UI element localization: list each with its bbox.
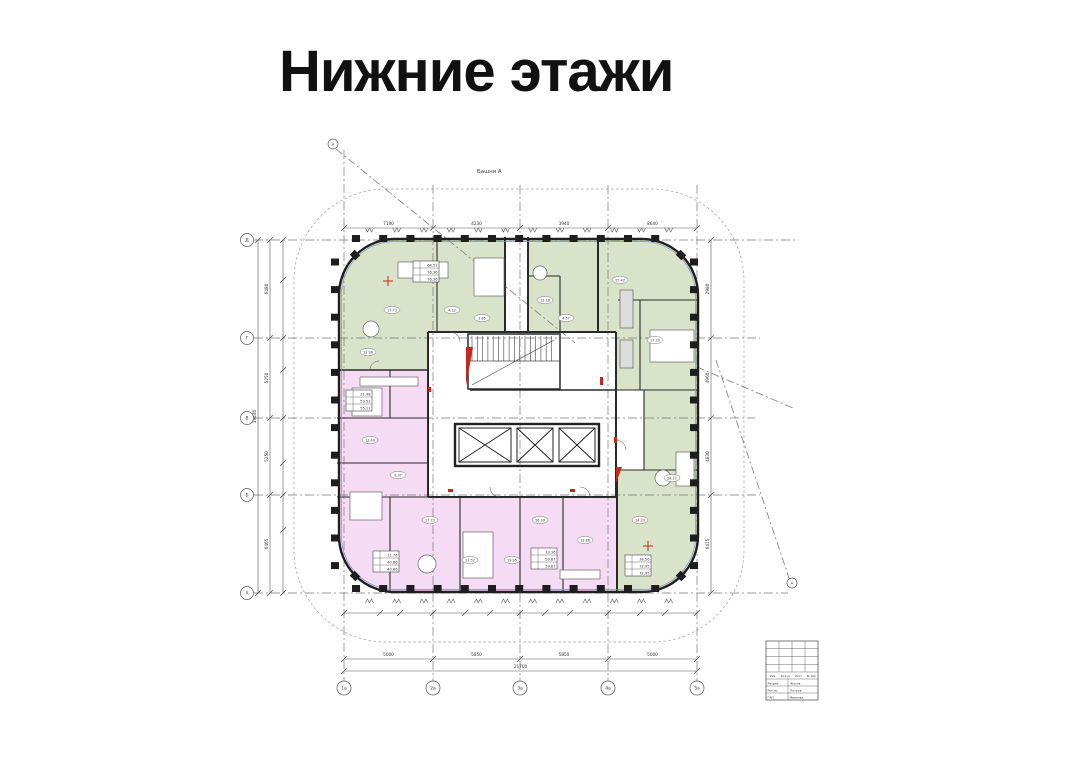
window-mark <box>393 599 401 603</box>
window-mark <box>638 228 646 232</box>
stat-value: 40.66 <box>387 568 398 572</box>
axis-marker-label: 4а <box>605 686 611 692</box>
room-area-label: 12.96 <box>363 350 373 354</box>
window-mark <box>447 599 455 603</box>
window-mark <box>366 228 374 232</box>
dining-table <box>533 266 547 280</box>
room-area-label: 4.12 <box>448 308 456 312</box>
room-area-label: 17.73 <box>425 518 435 522</box>
stat-value: 59.87 <box>545 558 555 562</box>
stat-value: 76.36 <box>427 278 438 282</box>
room-area-label: 12.40 <box>365 438 375 442</box>
window-mark <box>665 228 673 232</box>
room-area-label: 17.20 <box>650 338 660 342</box>
dim-label: 21700 <box>514 664 528 669</box>
floor-plan-drawing: 7190423039408640500058505850500021700648… <box>0 0 1072 773</box>
dining-table <box>363 321 379 337</box>
stat-value: 38.56 <box>639 558 650 562</box>
window-mark <box>393 228 401 232</box>
stat-value: 72.95 <box>639 572 649 576</box>
room-area-label: 4.57 <box>562 316 570 320</box>
column <box>690 259 698 266</box>
stamp-role: Рук.гр. <box>768 689 779 693</box>
dim-label: 5850 <box>471 652 482 657</box>
dim-label: 5250 <box>264 372 269 383</box>
dim-label: 4230 <box>471 221 482 226</box>
stat-value: 40.66 <box>387 561 398 565</box>
wardrobe <box>620 340 633 368</box>
stat-value: 55.11 <box>360 407 370 411</box>
room-area-label: 16.30 <box>535 518 545 522</box>
dim-label: 5000 <box>383 652 394 657</box>
stamp-role: ГАП <box>768 696 774 700</box>
dim-label: 6415 <box>705 538 710 549</box>
column <box>331 259 339 266</box>
room-area-label: 9.37 <box>394 473 402 477</box>
stamp-name: Петров <box>790 689 802 693</box>
axis-marker-label: 1а <box>341 686 347 692</box>
stat-value: 53.52 <box>360 400 370 404</box>
dim-label: 7190 <box>383 221 394 226</box>
window-mark <box>556 599 564 603</box>
tower-label: Башня А <box>477 169 502 175</box>
room-area-label: 15.42 <box>615 278 625 282</box>
floor-plan-svg: 7190423039408640500058505850500021700648… <box>0 0 1072 768</box>
stat-value: 11.76 <box>387 554 398 558</box>
window-mark <box>447 228 455 232</box>
dim-label: 4960 <box>705 372 710 383</box>
dining-table <box>418 555 436 573</box>
column <box>331 562 339 569</box>
axis-marker-label: Г <box>246 336 249 342</box>
stat-value: 59.87 <box>545 565 555 569</box>
bed <box>350 492 382 520</box>
column <box>352 235 360 242</box>
bed <box>463 532 493 578</box>
column <box>352 585 360 592</box>
bed <box>650 330 694 362</box>
axis-marker-label: Д <box>245 238 249 244</box>
window-mark <box>610 228 618 232</box>
window-mark <box>529 599 537 603</box>
stamp-name: Иванова <box>790 696 803 700</box>
window-mark <box>610 599 618 603</box>
window-mark <box>420 599 428 603</box>
room-area-label: 17.73 <box>387 308 397 312</box>
room-area-label: 13.86 <box>580 538 590 542</box>
stamp-role: Разраб <box>768 682 779 686</box>
axis-marker-label: 3а <box>517 686 523 692</box>
room-area-label: 28.12 <box>667 476 677 480</box>
stat-value: 76.36 <box>427 271 438 275</box>
axis-marker-label: Б <box>245 493 248 499</box>
dim-label: 8640 <box>647 221 658 226</box>
stamp-name: Жуков <box>790 682 801 686</box>
room-area-label: 3.85 <box>478 316 486 320</box>
window-mark <box>583 599 591 603</box>
dim-label: 6480 <box>264 283 269 294</box>
window-mark <box>502 228 510 232</box>
window-mark <box>474 228 482 232</box>
room-area-label: 23.18 <box>540 298 550 302</box>
kitchen-counter <box>560 570 600 579</box>
room-area-label: 14.29 <box>635 518 645 522</box>
window-mark <box>502 599 510 603</box>
window-mark <box>474 599 482 603</box>
window-mark <box>556 228 564 232</box>
window-mark <box>638 599 646 603</box>
stamp-header-cell: Изм <box>770 674 776 678</box>
window-mark <box>583 228 591 232</box>
stat-value: 64.51 <box>427 264 437 268</box>
axis-marker-label: В <box>245 416 248 422</box>
room-area-label: 11.52 <box>465 558 475 562</box>
dim-label: 6465 <box>264 538 269 549</box>
dim-label: 3940 <box>559 221 570 226</box>
stat-value: 72.95 <box>639 565 649 569</box>
window-mark <box>420 228 428 232</box>
window-mark <box>665 599 673 603</box>
window-mark <box>529 228 537 232</box>
bed <box>474 258 504 296</box>
stat-value: 13.36 <box>545 551 556 555</box>
axis-marker-label: 2а <box>430 686 436 692</box>
stamp-header-cell: Кол.уч <box>781 674 791 678</box>
dim-label: 5000 <box>647 652 658 657</box>
wardrobe <box>620 290 633 328</box>
title-block: ИзмКол.учЛист№ докРазрабЖуковРук.гр.Петр… <box>766 641 818 700</box>
dim-label: 5850 <box>559 652 570 657</box>
dim-label: 4830 <box>705 451 710 462</box>
dim-label: 2980 <box>705 283 710 294</box>
dim-label: 5250 <box>264 451 269 462</box>
window-mark <box>366 599 374 603</box>
kitchen-counter <box>360 377 418 386</box>
stamp-header-cell: Лист <box>795 674 802 678</box>
stamp-header-cell: № док <box>807 674 816 678</box>
stat-value: 21.48 <box>360 393 371 397</box>
axis-marker-label: 5а <box>694 686 700 692</box>
column <box>331 286 339 293</box>
room-area-label: 19.95 <box>507 558 517 562</box>
